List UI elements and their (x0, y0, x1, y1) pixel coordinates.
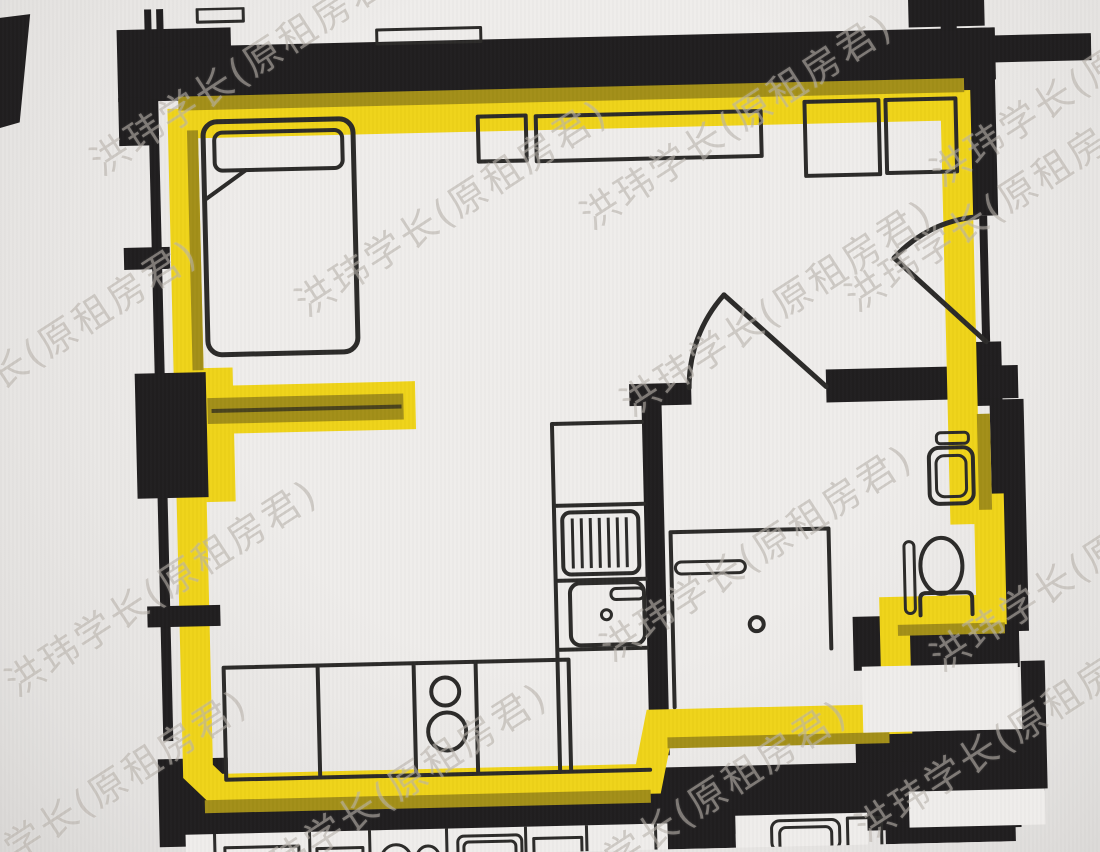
wall-stub-left-upper (124, 247, 171, 270)
door-leaf (724, 293, 826, 389)
floor-drain (750, 617, 764, 631)
neighbor-fixture-outline (197, 8, 243, 22)
neighbor-fixture-outline (377, 28, 481, 44)
top-left-corner-wedge (0, 14, 33, 130)
blanket-fold-line (204, 170, 247, 200)
drainboard-ridges (572, 517, 627, 568)
neighbor-white-notch (862, 663, 1020, 733)
door-opening-jamb-line (979, 216, 990, 342)
door-arc (687, 295, 726, 388)
bed-outline (203, 119, 358, 355)
bottom-wall-segment (667, 810, 736, 850)
kitchen-counter-vertical (552, 422, 650, 772)
neighbor-top-wall-right (991, 33, 1092, 62)
stove-burner-small (431, 677, 460, 706)
wall-stub-left-lower (147, 605, 220, 628)
lower-neighbor-wall (886, 825, 1016, 844)
basin-band-shadow (977, 414, 992, 510)
shower-bar (675, 560, 745, 574)
counter-cells (224, 658, 651, 780)
bottom-right-white-gap (909, 788, 1046, 827)
counter-cells (552, 422, 650, 772)
bathroom-door-swing (687, 293, 826, 390)
shower-area (671, 528, 833, 707)
neighbor-wall-line (940, 0, 957, 31)
structural-column (135, 372, 209, 499)
sink-drain (601, 610, 611, 620)
stove-burner-large (428, 712, 467, 751)
kitchen-counter-bottom (224, 658, 651, 780)
kitchen-sink (570, 582, 645, 646)
floor-plan-drawing (0, 0, 1100, 852)
floor-plan-photo: 洪玮学长(原租房君)洪玮学长(原租房君)洪玮学长(原租房君)洪玮学长(原租房君)… (0, 0, 1100, 852)
toilet-bowl (920, 537, 963, 594)
double-bed (203, 119, 358, 355)
plan-tilt-wrapper (0, 0, 1100, 852)
faucet (611, 588, 644, 600)
bathroom-top-wall (826, 365, 1019, 403)
